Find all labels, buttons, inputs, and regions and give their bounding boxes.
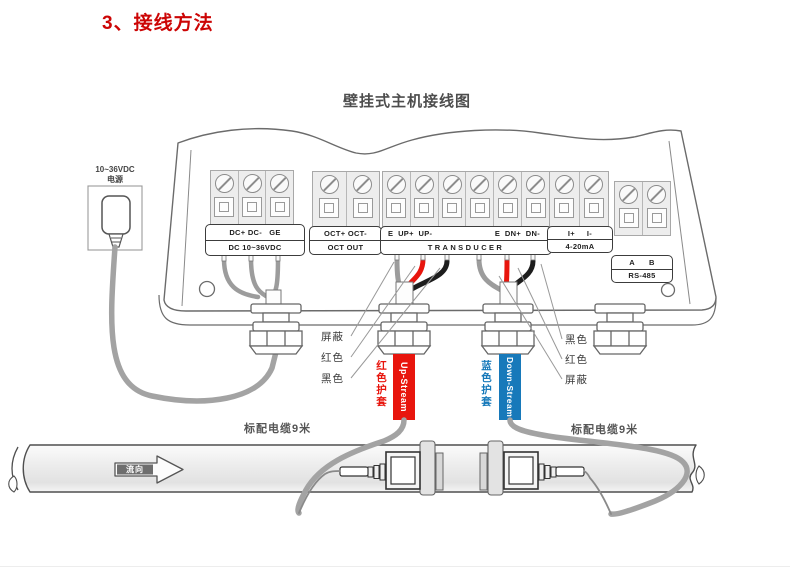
wire-label-shield-right: 屏蔽: [565, 372, 588, 387]
label-box-dc: DC+ DC- GE DC 10~36VDC: [205, 224, 305, 256]
label-oct-row1: OCT+ OCT-: [310, 227, 381, 240]
terminal-cell: [438, 172, 466, 226]
label-rs485-row1: A B: [612, 256, 672, 269]
screw-icon: [526, 175, 545, 194]
screw-icon: [443, 175, 462, 194]
wire-label-shield-left: 屏蔽: [321, 329, 344, 344]
downstream-sheath-label: 蓝色护套: [479, 360, 494, 418]
label-box-rs485: A B RS-485: [611, 255, 673, 283]
screw-icon: [555, 175, 574, 194]
flow-direction-label: 流向: [117, 464, 153, 475]
screw-icon: [415, 175, 434, 194]
screw-icon: [584, 175, 603, 194]
section-title: 3、接线方法: [102, 8, 214, 35]
screw-icon: [619, 185, 638, 204]
label-box-oct: OCT+ OCT- OCT OUT: [309, 226, 382, 255]
label-up-terminals: E UP+ UP-: [388, 229, 432, 238]
label-transducer-row1: E UP+ UP- E DN+ DN-: [381, 227, 551, 240]
screw-icon: [387, 175, 406, 194]
label-oct-row2: OCT OUT: [310, 240, 381, 254]
terminal-block-transducer: [382, 171, 550, 227]
clamp-icon: [470, 198, 490, 218]
clamp-icon: [414, 198, 434, 218]
terminal-block-dc: [210, 170, 294, 226]
clamp-icon: [584, 198, 604, 218]
terminal-cell: [265, 171, 293, 225]
clamp-icon: [214, 197, 234, 217]
terminal-block-current: [549, 171, 609, 227]
terminal-cell: [642, 182, 670, 235]
screw-icon: [215, 174, 234, 193]
clamp-icon: [270, 197, 290, 217]
label-transducer-row2: TRANSDUCER: [381, 240, 551, 254]
clamp-icon: [619, 208, 639, 228]
terminal-cell: [550, 172, 579, 226]
terminal-cell: [465, 172, 493, 226]
clamp-icon: [526, 198, 546, 218]
wire-label-red-right: 红色: [565, 352, 588, 367]
screw-icon: [270, 174, 289, 193]
upstream-tag: Up-Stream: [393, 356, 415, 418]
clamp-icon: [353, 198, 373, 218]
diagram-title: 壁挂式主机接线图: [307, 90, 507, 111]
label-dc-row2: DC 10~36VDC: [206, 240, 304, 256]
clamp-icon: [319, 198, 339, 218]
clamp-icon: [554, 198, 574, 218]
wire-label-black-right: 黑色: [565, 332, 588, 347]
label-dn-terminals: E DN+ DN-: [495, 229, 540, 238]
cable-note-left: 标配电缆9米: [244, 420, 311, 436]
label-box-current: I+ I- 4-20mA: [547, 226, 613, 253]
terminal-cell: [211, 171, 238, 225]
label-rs485-row2: RS-485: [612, 269, 672, 283]
terminal-cell: [579, 172, 609, 226]
screw-icon: [647, 185, 666, 204]
terminal-cell: [238, 171, 266, 225]
label-dc-row1: DC+ DC- GE: [206, 225, 304, 240]
wiring-method-page: 3、接线方法 壁挂式主机接线图 10~36VDC 电源 DC+ DC- GE D…: [0, 0, 790, 567]
terminal-cell: [346, 172, 380, 226]
power-plug: [88, 186, 142, 250]
mounting-hole-left: [200, 282, 215, 297]
wire-label-black-left: 黑色: [321, 371, 344, 386]
terminal-cell: [410, 172, 438, 226]
downstream-tag: Down-Stream: [499, 356, 521, 418]
terminal-cell: [615, 182, 642, 235]
terminal-block-oct: [312, 171, 380, 227]
screw-icon: [243, 174, 262, 193]
wire-label-red-left: 红色: [321, 350, 344, 365]
label-current-row1: I+ I-: [548, 227, 612, 239]
mounting-hole-right: [662, 284, 675, 297]
power-supply-label-line2: 电源: [82, 175, 148, 185]
power-supply-label-line1: 10~36VDC: [82, 165, 148, 175]
screw-icon: [320, 175, 339, 194]
clamp-icon: [242, 197, 262, 217]
clamp-icon: [498, 198, 518, 218]
terminal-cell: [493, 172, 521, 226]
terminal-block-rs485: [614, 181, 671, 236]
label-current-row2: 4-20mA: [548, 239, 612, 252]
screw-icon: [353, 175, 372, 194]
terminal-cell: [521, 172, 549, 226]
screw-icon: [498, 175, 517, 194]
label-box-transducer: E UP+ UP- E DN+ DN- TRANSDUCER: [380, 226, 552, 255]
clamp-icon: [386, 198, 406, 218]
cable-note-right: 标配电缆9米: [571, 421, 638, 437]
clamp-icon: [647, 208, 667, 228]
clamp-icon: [442, 198, 462, 218]
wall-mount-wiring-diagram: [0, 0, 790, 566]
terminal-cell: [313, 172, 346, 226]
terminal-cell: [383, 172, 410, 226]
upstream-sheath-label: 红色护套: [374, 360, 389, 418]
screw-icon: [470, 175, 489, 194]
